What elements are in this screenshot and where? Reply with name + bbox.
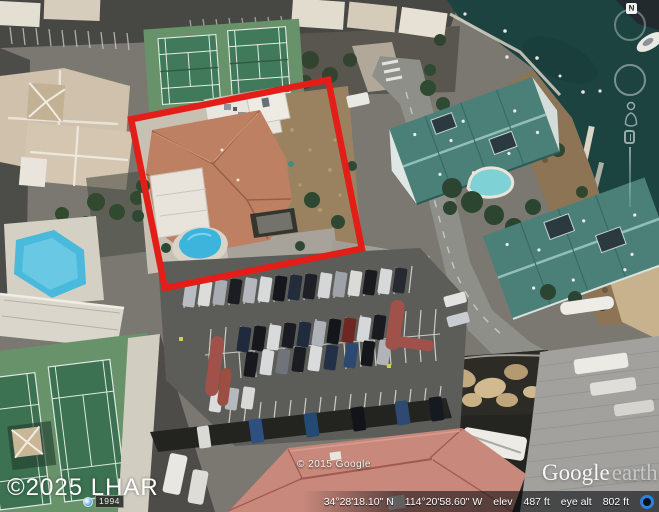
- status-bar: 34°28'18.10" N 114°20'58.60" W elev 487 …: [0, 491, 659, 512]
- move-joystick-ring[interactable]: [614, 64, 646, 96]
- logo-google: Google: [542, 460, 610, 485]
- status-eyealt-label: eye alt: [561, 496, 592, 508]
- logo-earth: earth: [612, 460, 658, 485]
- pegman-icon[interactable]: [622, 100, 640, 133]
- zoom-slider-handle[interactable]: [624, 130, 635, 144]
- google-earth-viewport[interactable]: ©2025 LHAR 1994 © 2015 Google Googleeart…: [0, 0, 659, 512]
- status-longitude: 114°20'58.60" W: [405, 496, 482, 508]
- watermark-imagery-copyright: © 2015 Google: [297, 459, 371, 470]
- streaming-indicator-icon: [640, 495, 654, 509]
- google-earth-logo: Googleearth: [542, 460, 658, 486]
- status-eyealt-value: 802 ft: [603, 496, 629, 508]
- aerial-imagery[interactable]: [0, 0, 659, 512]
- status-latitude: 34°28'18.10" N: [324, 496, 394, 508]
- zoom-slider-track[interactable]: [629, 147, 631, 207]
- status-elev-value: 487 ft: [524, 496, 550, 508]
- compass-ring[interactable]: [614, 9, 646, 41]
- status-elev-label: elev: [493, 496, 512, 508]
- swimming-pool-left: [4, 216, 104, 308]
